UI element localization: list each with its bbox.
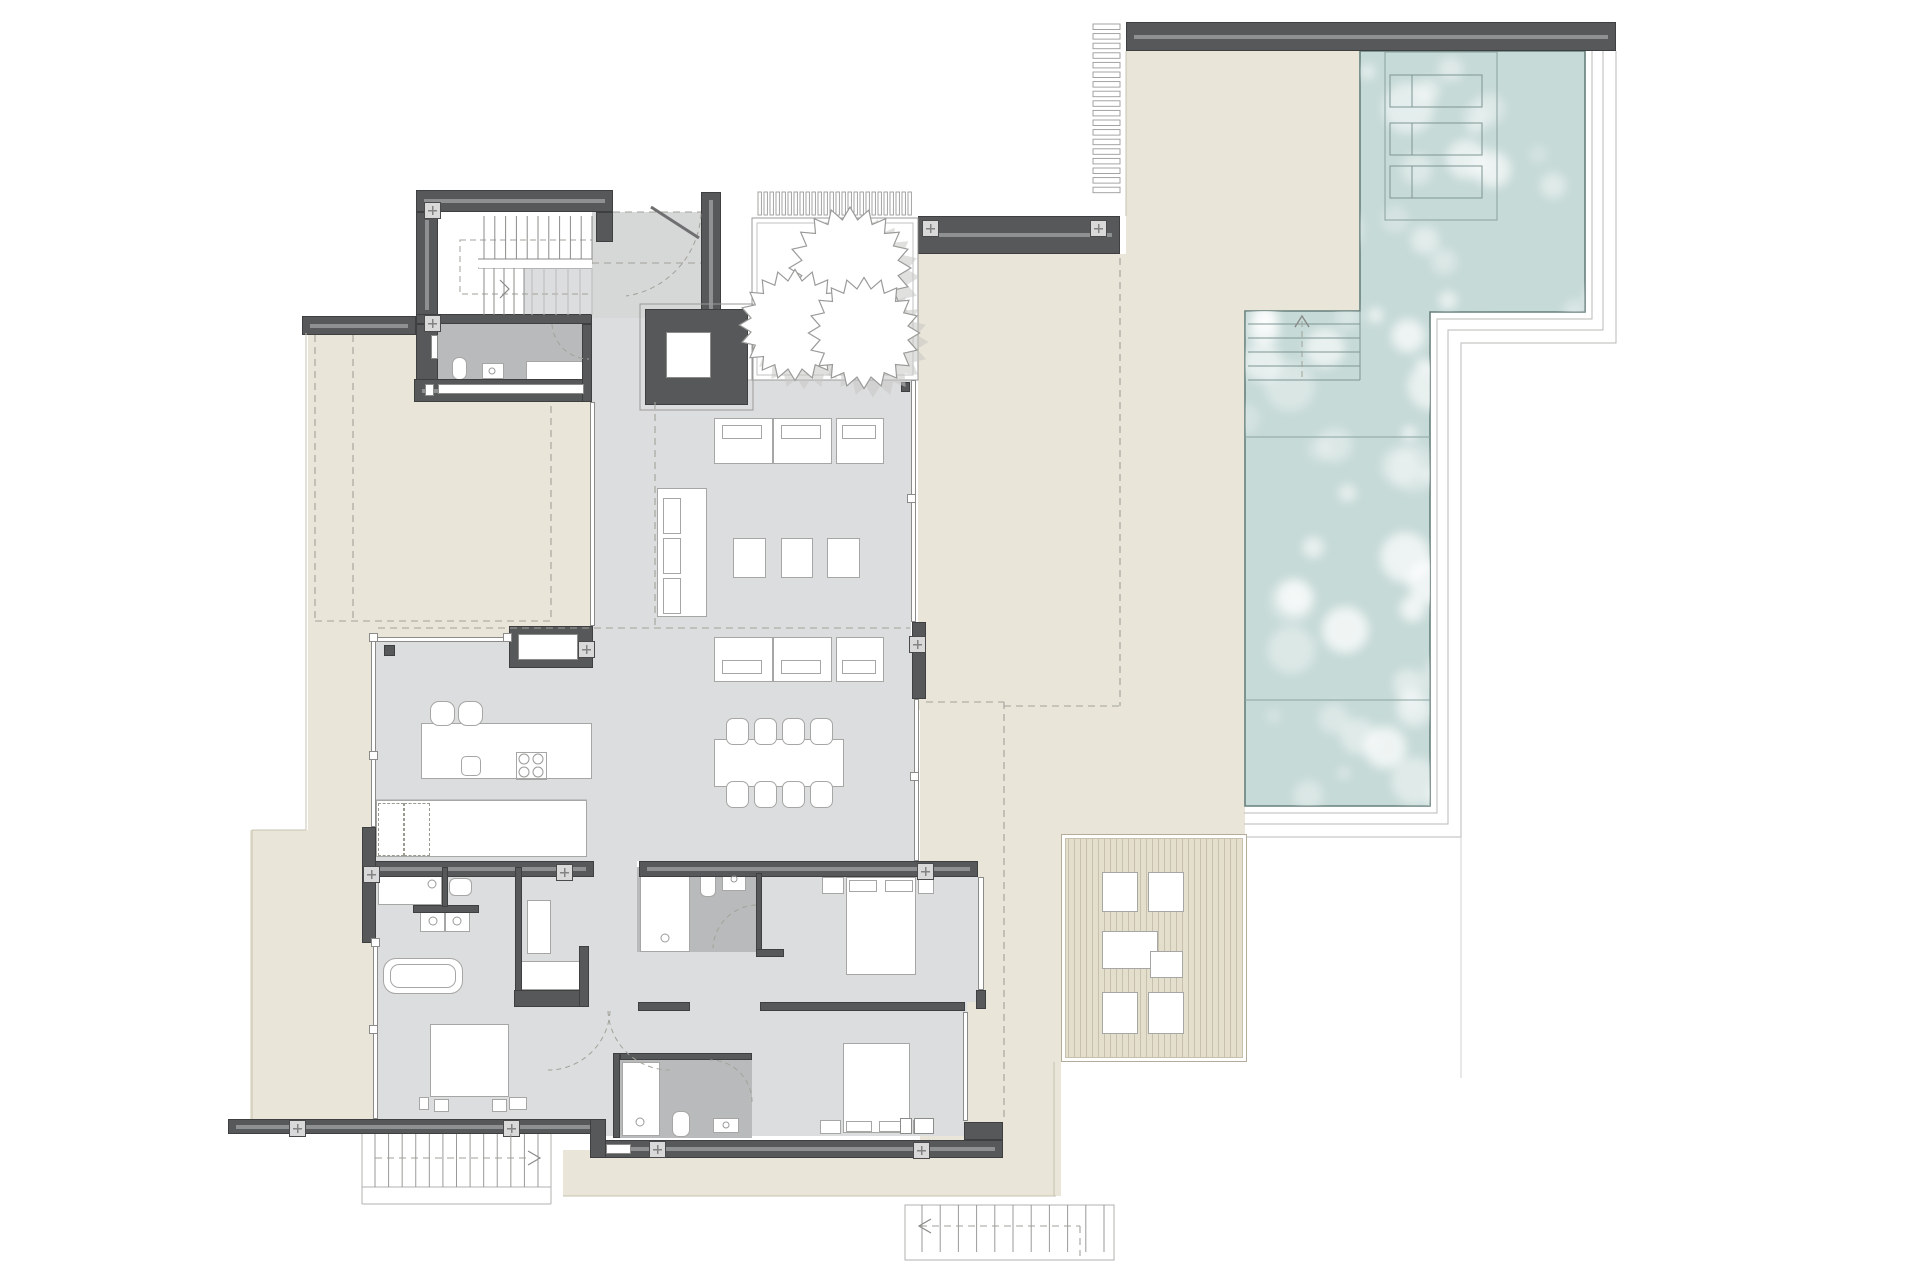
pergola-louvers-bar (782, 192, 785, 215)
stairs-left (375, 1134, 538, 1187)
pergola-louvers-bar (764, 192, 767, 215)
stairs-south (922, 1205, 1104, 1252)
pergola-louvers-bar (896, 192, 899, 215)
patio-box-outline (640, 304, 753, 410)
pergola-louvers-bar (758, 192, 761, 215)
drain-grate-bar (1093, 178, 1120, 184)
cooktop-burner-1 (519, 754, 529, 764)
drain-grate-bar (1093, 72, 1120, 78)
pergola-louvers-bar (902, 192, 905, 215)
drain-grate-bar (1093, 91, 1120, 97)
pergola-louvers-bar (806, 192, 809, 215)
drain-grate-bar (1093, 62, 1120, 68)
drain-grate-bar (1093, 139, 1120, 145)
drain-grate-bar (1093, 34, 1120, 40)
cooktop-burner-4 (533, 767, 543, 777)
pool-arrowhead (1295, 316, 1309, 327)
drain-grate-bar (1093, 130, 1120, 136)
pergola-louvers (758, 192, 911, 215)
stair-rail-slot (479, 260, 592, 268)
drain-grate-bar (1093, 168, 1120, 174)
bath2-vanity-drain (731, 876, 737, 882)
pergola-louvers-bar (854, 192, 857, 215)
bath3-door-arc (710, 1060, 752, 1102)
stair-hall-upper (484, 216, 592, 259)
vanity2-drain-1 (429, 917, 437, 925)
pergola-louvers-bar (908, 192, 911, 215)
drain-grate-bar (1093, 110, 1120, 116)
hall-door-arc-right (608, 1011, 670, 1070)
powder-door-arc (552, 324, 589, 359)
bath2-shower-drain (661, 934, 669, 942)
drain-grate (1093, 24, 1120, 193)
drain-grate-bar (1093, 53, 1120, 59)
pergola-louvers-bar (788, 192, 791, 215)
cooktop-burner-2 (533, 754, 543, 764)
pergola-louvers-bar (800, 192, 803, 215)
cooktop-burner-3 (519, 767, 529, 777)
pergola-louvers-bar (878, 192, 881, 215)
stair4-outline (905, 1205, 1114, 1260)
pergola-louvers-bar (860, 192, 863, 215)
pergola-louvers-bar (776, 192, 779, 215)
linework-layer (0, 0, 1920, 1280)
pergola-louvers-bar (890, 192, 893, 215)
pergola-louvers-bar (824, 192, 827, 215)
drain-grate-bar (1093, 120, 1120, 126)
powder-sink-drain (489, 368, 495, 374)
stair-hall-ghost (532, 268, 592, 315)
pergola-louvers-bar (884, 192, 887, 215)
pergola-louvers-bar (794, 192, 797, 215)
pergola-louvers-bar (818, 192, 821, 215)
drain-grate-bar (1093, 101, 1120, 107)
pergola-louvers-bar (842, 192, 845, 215)
vanity2-drain-2 (453, 917, 461, 925)
drain-grate-bar (1093, 149, 1120, 155)
drain-grate-bar (1093, 187, 1120, 193)
bath2-door-arc (713, 905, 756, 948)
drain-grate-bar (1093, 82, 1120, 88)
stair-hall-lower (484, 268, 524, 315)
floor-plan (0, 0, 1920, 1280)
bath3-sink-drain (723, 1122, 729, 1128)
pergola-louvers-bar (812, 192, 815, 215)
bath3-shower-drain (636, 1118, 644, 1126)
pergola-louvers-bar (872, 192, 875, 215)
pergola-louvers-bar (770, 192, 773, 215)
front-door-arc (626, 214, 701, 296)
drain-grate-bar (1093, 158, 1120, 164)
hall-door-arc-left (548, 1011, 610, 1070)
pergola-louvers-bar (836, 192, 839, 215)
drain-grate-bar (1093, 24, 1120, 30)
master-vanity-drain (428, 880, 436, 888)
drain-grate-bar (1093, 43, 1120, 49)
